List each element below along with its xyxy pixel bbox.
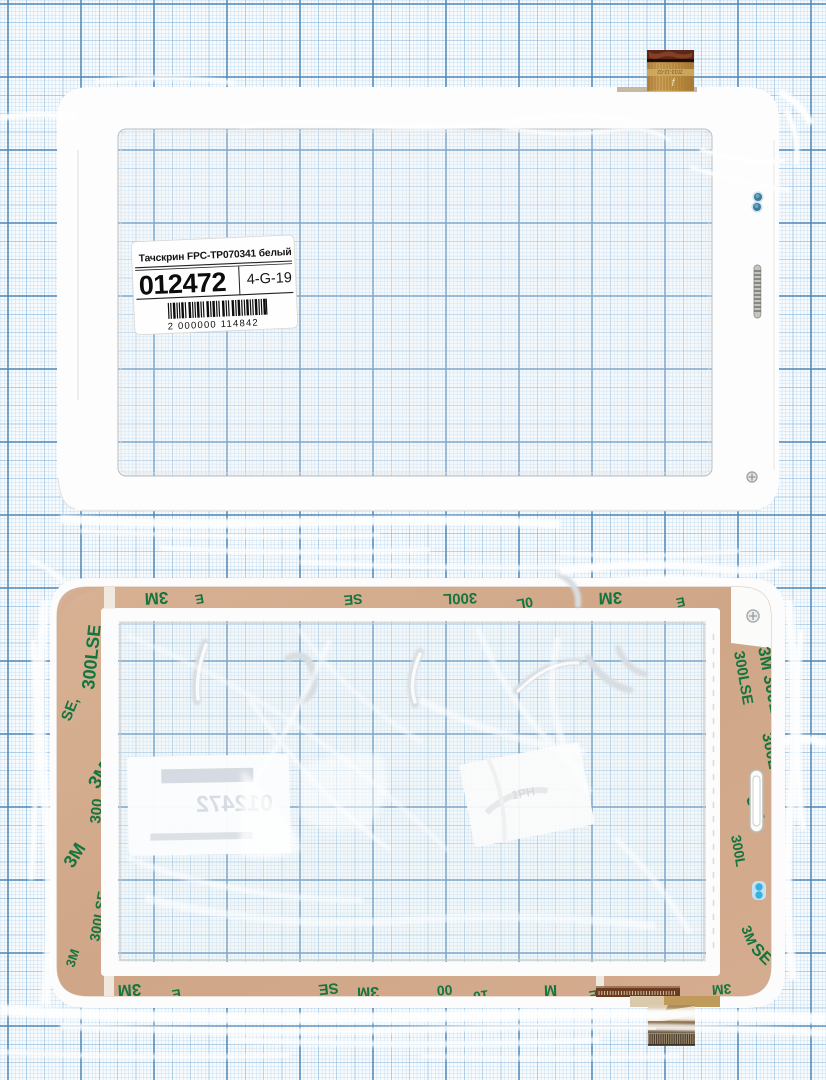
svg-text:2013-12-02: 2013-12-02 — [657, 68, 683, 74]
svg-text:SE: SE — [318, 979, 340, 998]
svg-text:3M: 3M — [598, 588, 622, 608]
svg-text:300L: 300L — [443, 589, 478, 607]
svg-text:4-G-19: 4-G-19 — [246, 270, 292, 288]
svg-text:3M: 3M — [711, 981, 732, 998]
svg-text:SE: SE — [343, 591, 363, 609]
svg-text:3M: 3M — [144, 588, 169, 608]
svg-text:M: M — [544, 981, 558, 998]
